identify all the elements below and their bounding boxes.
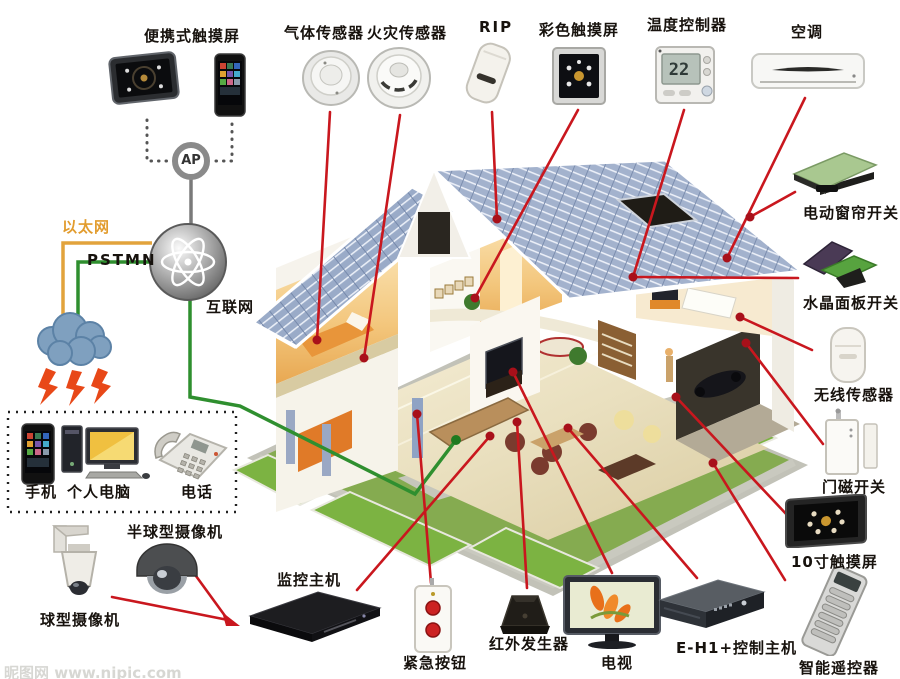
label-tv: 电视 [601, 655, 633, 672]
label-pc: 个人电脑 [67, 484, 131, 501]
label-ir-generator: 红外发生器 [489, 636, 569, 653]
gas-sensor-device [301, 49, 361, 107]
curtain-switch-device [786, 148, 882, 202]
internet-node [150, 224, 226, 300]
monitor-host-device [244, 588, 384, 644]
color-touchscreen-device [549, 46, 609, 106]
tv-device [561, 574, 663, 652]
label-internet: 互联网 [206, 299, 254, 316]
telephone-device [150, 424, 230, 482]
door-magnet-device [820, 408, 882, 476]
label-temp-controller: 温度控制器 [647, 17, 727, 34]
label-rip: RIP [479, 19, 513, 36]
label-telephone: 电话 [181, 484, 213, 501]
rip-motion-sensor-device [460, 38, 516, 110]
label-pstmn: PSTMN [87, 252, 157, 269]
thermostat-reading: 22 [664, 60, 694, 80]
label-touchscreen-10in: 10寸触摸屏 [791, 554, 878, 571]
label-ethernet: 以太网 [62, 219, 110, 236]
fire-sensor-device [366, 46, 432, 110]
label-eh1-host: E-H1+控制主机 [676, 640, 797, 657]
label-ap: AP [176, 153, 206, 168]
label-dome-camera: 半球型摄像机 [127, 524, 223, 541]
eh1-host-device [656, 578, 768, 634]
label-curtain-switch: 电动窗帘开关 [803, 205, 899, 222]
touchscreen-10in-device [784, 494, 870, 548]
label-mobile-phone: 手机 [25, 484, 57, 501]
pc-device [60, 420, 152, 482]
label-fire-sensor: 火灾传感器 [367, 25, 447, 42]
portable-tablet-device [108, 48, 180, 108]
label-portable-touchscreen: 便携式触摸屏 [144, 28, 240, 45]
label-monitor-host: 监控主机 [277, 572, 341, 589]
label-smart-remote: 智能遥控器 [799, 660, 879, 677]
label-wireless-sensor: 无线传感器 [814, 387, 894, 404]
cloud-icon [38, 313, 111, 365]
label-air-conditioner: 空调 [791, 24, 823, 41]
watermark: 昵图网 www.nipic.com [4, 662, 182, 679]
label-emergency-button: 紧急按钮 [403, 655, 467, 672]
smart-remote-device [786, 568, 882, 656]
crystal-panel-switch-device [796, 236, 884, 290]
wireless-sensor-device [824, 324, 872, 386]
smartphone-top-device [212, 52, 248, 118]
mobile-phone-device [18, 422, 58, 486]
ir-generator-device [498, 588, 554, 638]
house-illustration [234, 160, 808, 596]
smart-home-diagram: 22 [0, 0, 900, 679]
label-gas-sensor: 气体传感器 [284, 25, 364, 42]
label-door-magnet-switch: 门磁开关 [822, 479, 886, 496]
ball-camera-device [40, 524, 116, 610]
label-ball-camera: 球型摄像机 [40, 612, 120, 629]
label-crystal-panel-switch: 水晶面板开关 [803, 295, 899, 312]
lightning-icons [38, 368, 111, 406]
emergency-button-device [410, 578, 456, 654]
label-color-touchscreen: 彩色触摸屏 [539, 22, 619, 39]
dome-camera-device [132, 542, 202, 600]
air-conditioner-device [750, 50, 866, 94]
